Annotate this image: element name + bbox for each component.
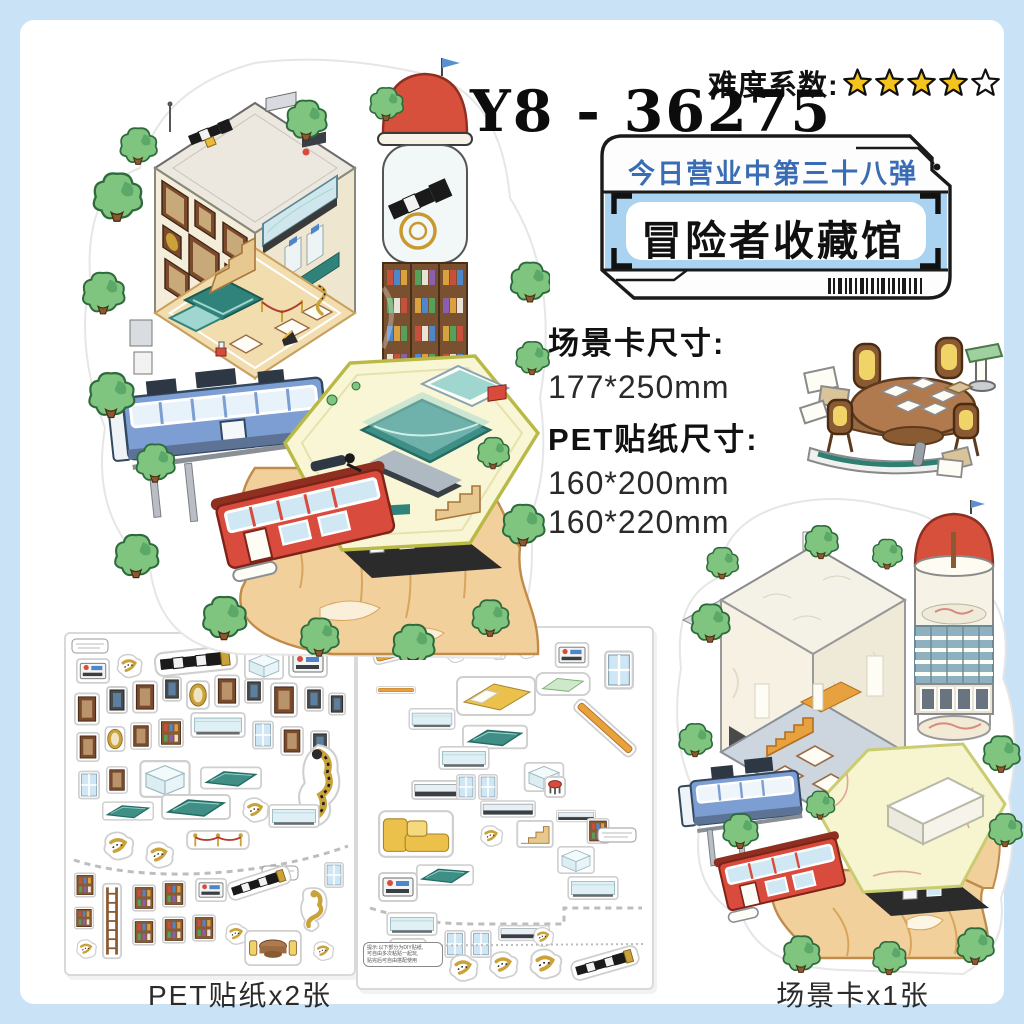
note-line-3: 贴完后可自由搭配使用 (367, 958, 439, 964)
chair-back-left (854, 344, 880, 388)
star-rating (842, 67, 1001, 100)
pet-size-label: PET贴纸尺寸: (548, 414, 759, 459)
star-icon (906, 67, 937, 100)
title-badge: 今日营业中第三十八弹 冒险者收藏馆 (588, 130, 964, 310)
scene-card-size-label: 场景卡尺寸: (548, 318, 759, 363)
pet-size-value-1: 160*200mm (548, 465, 759, 502)
desk-lamp-icon (966, 344, 1002, 391)
size-specs: 场景卡尺寸: 177*250mm PET贴纸尺寸: 160*200mm 160*… (548, 318, 759, 549)
product-code: Y8 - 36275 (470, 78, 832, 145)
content-card: 难度系数: Y8 - 36275 (20, 20, 1004, 1004)
note-bubble: 提示:以下部分为DIY贴纸, 可自由多次粘贴一起玩, 贴完后可自由搭配使用 (363, 942, 443, 967)
pet-size-value-2: 160*220mm (548, 504, 759, 541)
star-icon (970, 67, 1001, 100)
sticker-sheet-2: 提示:以下部分为DIY贴纸, 可自由多次粘贴一起玩, 贴完后可自由搭配使用 (356, 626, 654, 990)
page-frame: 难度系数: Y8 - 36275 (0, 0, 1024, 1024)
star-icon (842, 67, 873, 100)
flag-icon (442, 58, 460, 68)
sticker-sheet-2-graphic (358, 628, 652, 988)
pet-sheets-caption: PET贴纸x2张 (120, 974, 360, 1014)
scene-card-size-value: 177*250mm (548, 369, 759, 406)
scene-card-caption: 场景卡x1张 (758, 974, 948, 1014)
chair-front-left (828, 400, 852, 452)
reading-table-illustration (798, 312, 1018, 482)
sticker-sheet-1-graphic (66, 634, 354, 974)
star-icon (938, 67, 969, 100)
sticker-sheet-1 (64, 632, 356, 976)
chair-back-mid (936, 338, 962, 378)
badge-subtitle: 今日营业中第三十八弹 (608, 152, 938, 191)
star-icon (874, 67, 905, 100)
badge-title: 冒险者收藏馆 (618, 207, 928, 267)
scene-card-illustration (663, 488, 1023, 984)
